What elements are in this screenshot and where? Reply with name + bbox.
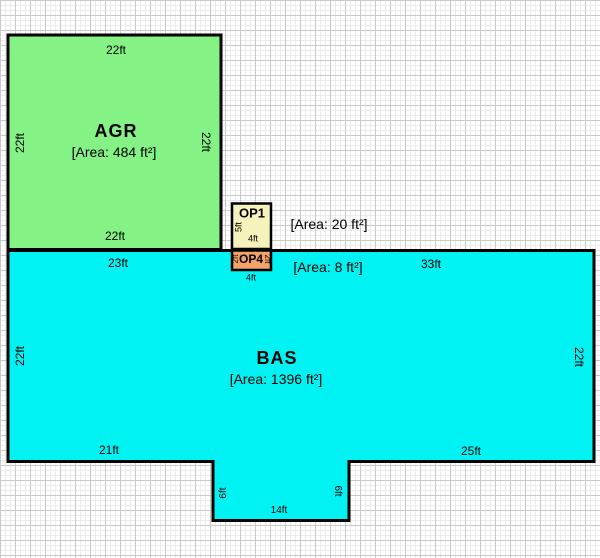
agr-dim-top: 22ft (106, 44, 126, 56)
bas-dim-top-left: 23ft (108, 257, 128, 269)
bas-dim-notch-left: 6ft (219, 487, 229, 498)
op4-dim-left: 2ft (232, 255, 240, 264)
bas-area-label: [Area: 1396 ft²] (230, 372, 323, 386)
op1-room-label: OP1 (239, 207, 265, 220)
agr-dim-right: 22ft (200, 132, 212, 152)
room-agr-shape[interactable] (8, 35, 221, 250)
bas-room-label: BAS (256, 349, 297, 367)
op4-area-label: [Area: 8 ft²] (293, 260, 362, 274)
op4-dim-bottom: 4ft (246, 274, 256, 283)
op1-area-label: [Area: 20 ft²] (290, 217, 367, 231)
sketch-canvas[interactable]: AGR [Area: 484 ft²] 22ft 22ft 22ft 22ft … (0, 0, 600, 558)
agr-area-label: [Area: 484 ft²] (72, 145, 157, 159)
bas-dim-left: 22ft (14, 346, 26, 366)
agr-dim-bottom: 22ft (105, 230, 125, 242)
sketch-shapes-layer (0, 0, 600, 558)
bas-dim-top-right: 33ft (421, 258, 441, 270)
op1-dim-bottom: 4ft (248, 235, 258, 244)
op1-dim-left: 5ft (235, 222, 244, 232)
op4-room-label: OP4 (239, 253, 263, 265)
op4-dim-right: 2ft (263, 255, 271, 264)
agr-room-label: AGR (95, 122, 138, 140)
bas-dim-right: 22ft (573, 347, 585, 367)
bas-dim-notch-bottom: 14ft (271, 506, 288, 516)
bas-dim-bottom-left: 21ft (99, 444, 119, 456)
bas-dim-notch-right: 6ft (332, 485, 342, 496)
bas-dim-bottom-right: 25ft (461, 445, 481, 457)
agr-dim-left: 22ft (14, 133, 26, 153)
